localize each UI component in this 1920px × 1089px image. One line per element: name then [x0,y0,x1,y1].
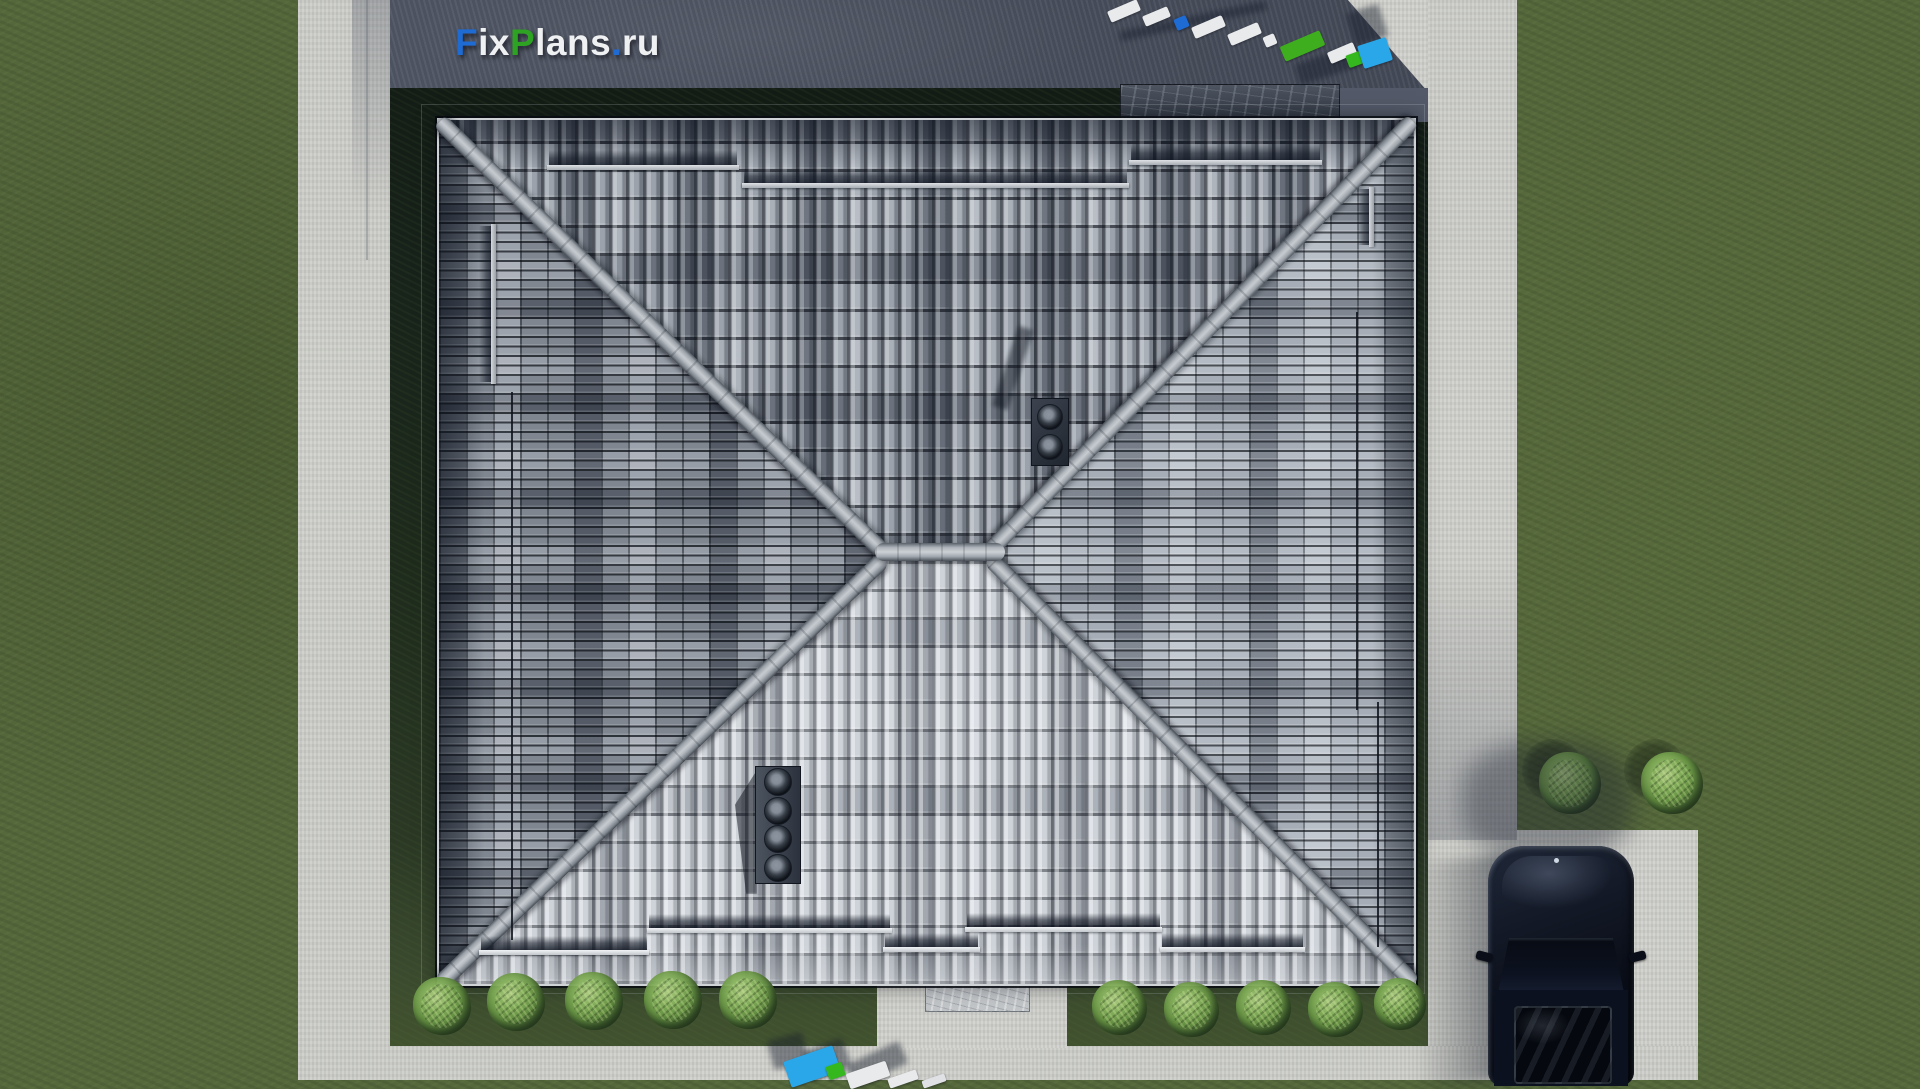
watermark-3d-bottom [0,0,1920,1080]
fixplans-logo: FixPlans.ru [455,22,660,66]
logo-letter: lans [535,22,611,63]
logo-letter: P [510,22,535,63]
aerial-render-scene: { "watermark": { "site_text": "FixPlans.… [0,0,1920,1080]
watermark-3d-block [921,1073,946,1088]
logo-letter: ix [478,22,510,63]
logo-letter: . [611,22,622,63]
logo-letter: ru [622,22,660,63]
watermark-3d-block [887,1069,919,1088]
logo-letter: F [455,22,478,63]
